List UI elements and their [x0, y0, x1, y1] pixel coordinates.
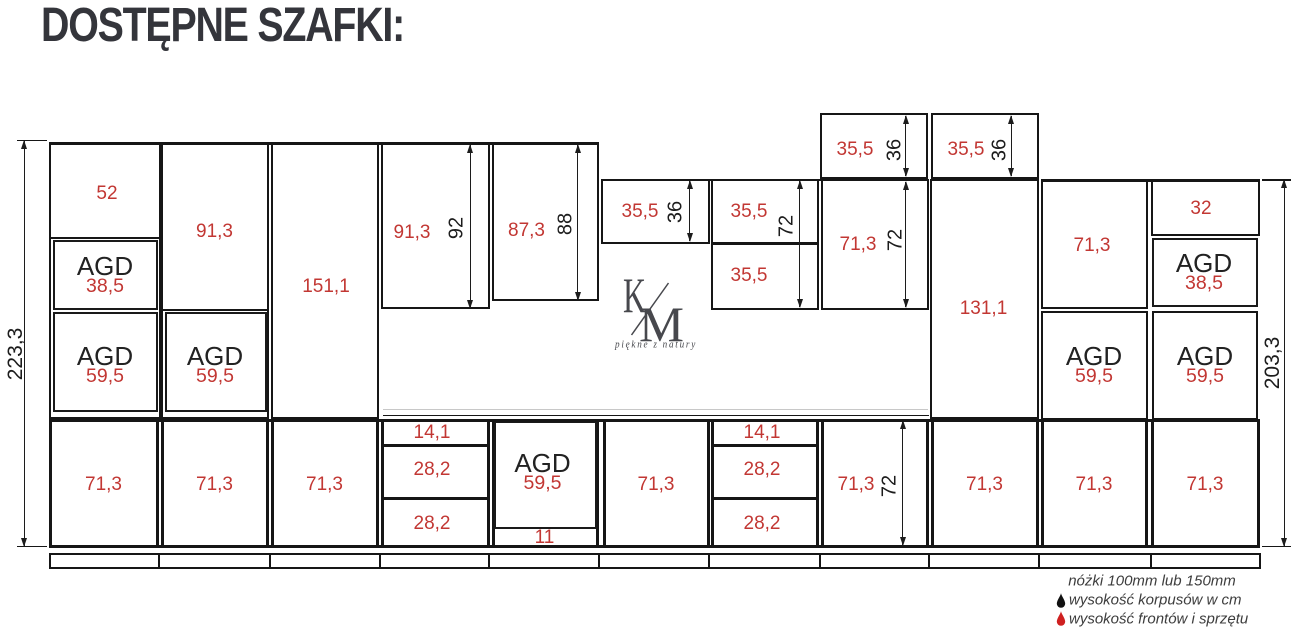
svg-text:piękne z natury: piękne z natury [614, 340, 697, 351]
